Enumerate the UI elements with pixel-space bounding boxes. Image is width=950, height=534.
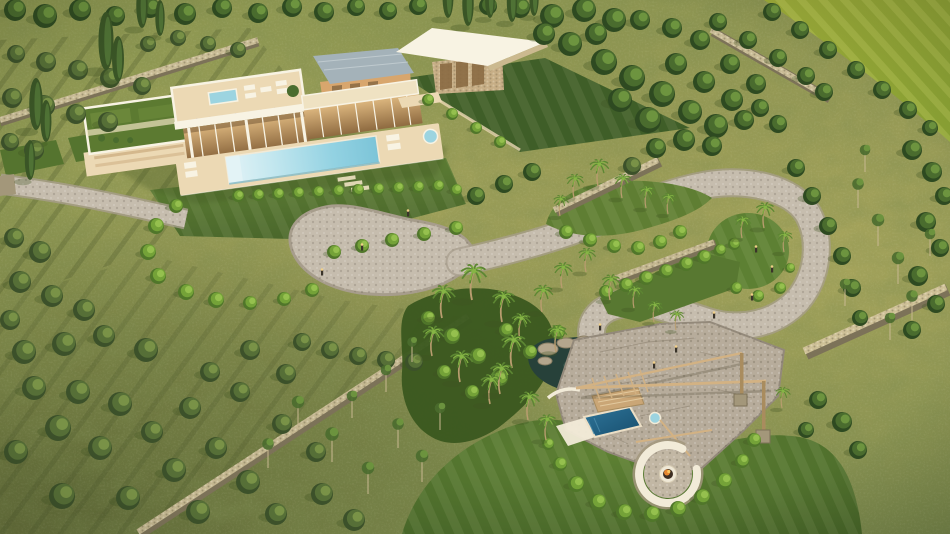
vignette <box>0 0 950 534</box>
estate-scene <box>0 0 950 534</box>
aerial-estate-render <box>0 0 950 534</box>
